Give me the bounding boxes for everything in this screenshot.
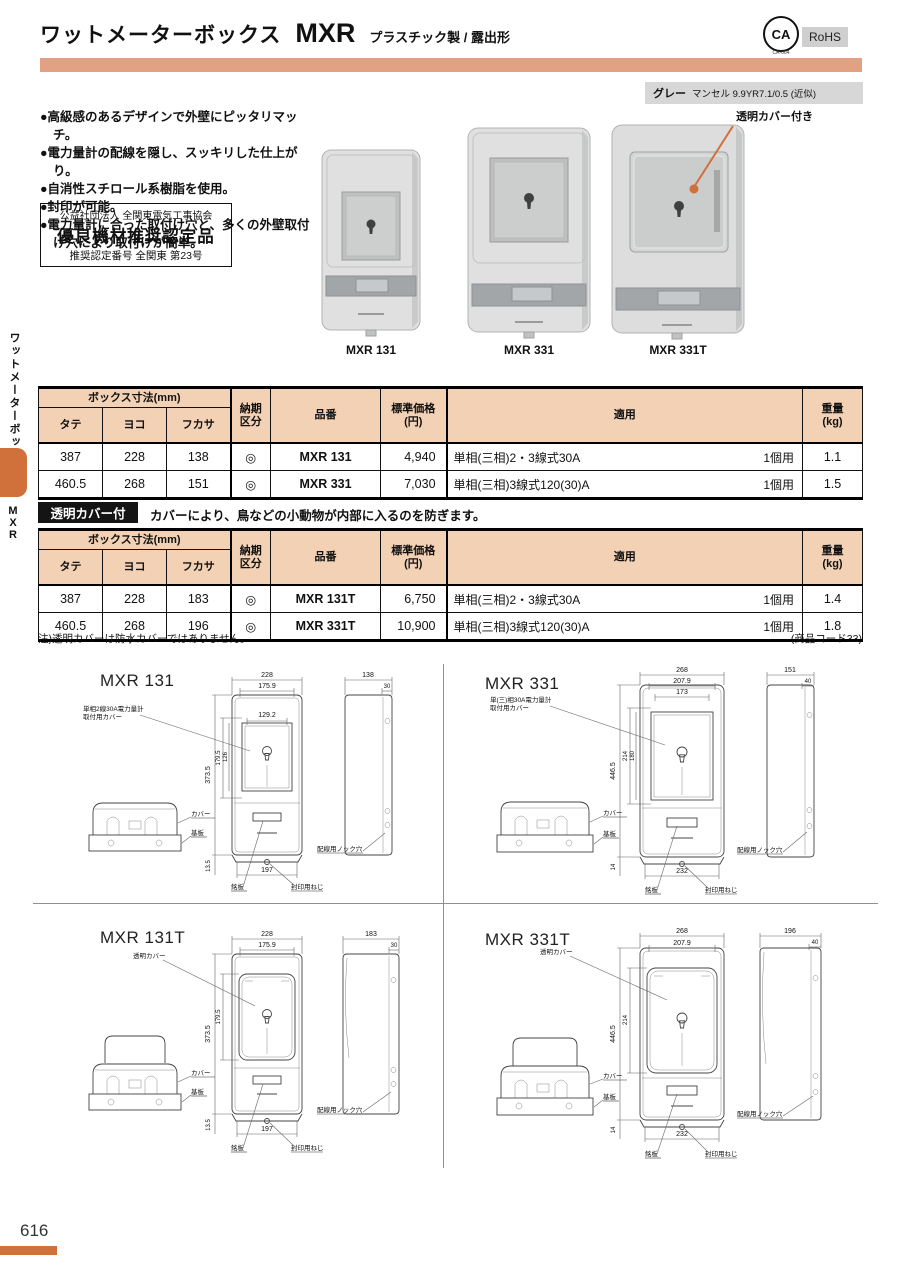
callout-nameplate: 銘板 <box>231 1143 245 1152</box>
technical-drawing-mxr131: 228 175.9 129.2 373.5 179.5 126 13.5 197… <box>45 663 440 903</box>
col-width: ヨコ <box>103 550 167 586</box>
application-text: 単相(三相)3線式120(30)A <box>454 476 590 493</box>
col-delivery: 納期 区分 <box>231 530 271 586</box>
color-name: グレー <box>653 85 686 101</box>
accent-bar <box>40 58 862 72</box>
col-price: 標準価格 (円) <box>381 530 447 586</box>
clear-cover-annotation: 透明カバー付き <box>736 108 813 124</box>
photo-mxr331t <box>612 125 744 339</box>
col-height: タテ <box>39 408 103 444</box>
feature-item: ●自消性スチロール系樹脂を使用。 <box>40 180 312 198</box>
callout-knockout: 配線用ノック穴 <box>737 845 783 854</box>
certification-box: 公益社団法人 全関東電気工事協会 優良機材推奨認定品 推奨認定番号 全関東 第2… <box>40 203 232 267</box>
dim-inner-width: 207.9 <box>673 678 691 685</box>
col-delivery-l2: 区分 <box>233 416 270 429</box>
callout-clear-cover: 透明カバー <box>133 952 166 960</box>
dim-bottom-width: 197 <box>261 1126 273 1133</box>
callout-cover: カバー <box>191 810 211 818</box>
col-weight-l1: 重量 <box>804 545 861 558</box>
application-unit: 1個用 <box>763 591 794 608</box>
col-application: 適用 <box>447 388 803 444</box>
dim-bottom-offset: 13.5 <box>206 860 212 872</box>
technical-drawing-mxr331: 268 207.9 173 446.5 214 180 14 232 151 4… <box>455 660 860 905</box>
col-price: 標準価格 (円) <box>381 388 447 444</box>
photo-label-mxr131: MXR 131 <box>326 343 416 357</box>
page-number-bar <box>0 1246 57 1255</box>
dim-width: 228 <box>261 931 273 938</box>
photo-label-mxr331: MXR 331 <box>484 343 574 357</box>
callout-seal-screw: 封印用ねじ <box>291 1143 324 1152</box>
dim-height: 373.5 <box>205 1025 212 1043</box>
footnote: 注)透明カバーは防水カバーではありません。 <box>38 631 251 646</box>
cell-yoko: 268 <box>103 471 167 499</box>
drawing-quadrant-mxr131t: MXR 131T 228 175.9 373.5 179.5 <box>45 918 440 1168</box>
callout-seal-screw: 封印用ねじ <box>705 1149 738 1158</box>
dim-height: 373.5 <box>205 766 212 784</box>
photo-mxr131 <box>322 150 420 336</box>
dim-depth2: 40 <box>805 679 812 685</box>
cell-tate: 387 <box>39 585 103 613</box>
cell-yoko: 228 <box>103 443 167 471</box>
cell-fukasa: 151 <box>167 471 231 499</box>
dim-window-h1: 214 <box>623 1014 629 1025</box>
dim-depth: 196 <box>784 928 796 935</box>
dim-bottom-width: 232 <box>676 1131 688 1138</box>
dim-width: 268 <box>676 928 688 935</box>
application-text: 単相(三相)2・3線式30A <box>454 449 581 466</box>
feature-item: ●高級感のあるデザインで外壁にピッタリマッチ。 <box>40 108 312 144</box>
callout-base: 基板 <box>603 829 617 838</box>
dim-depth: 183 <box>365 931 377 938</box>
col-part: 品番 <box>271 530 381 586</box>
callout-nameplate: 銘板 <box>231 882 245 891</box>
col-part: 品番 <box>271 388 381 444</box>
drawing-quadrant-mxr131: MXR 131 228 175.9 129.2 <box>45 663 440 903</box>
dim-bottom-offset: 13.5 <box>206 1119 212 1131</box>
callout-meter-cover-l1: 単(三)相30A電力量計 <box>490 695 552 704</box>
col-price-l1: 標準価格 <box>382 403 445 416</box>
photo-mxr331 <box>468 128 590 338</box>
dim-depth: 138 <box>362 672 374 679</box>
callout-seal-screw: 封印用ねじ <box>705 885 738 894</box>
keyhole-icon <box>263 747 272 761</box>
application-text: 単相(三相)2・3線式30A <box>454 591 581 608</box>
cert-title: 優良機材推奨認定品 <box>57 223 215 247</box>
cell-weight: 1.1 <box>803 443 863 471</box>
cell-fukasa: 138 <box>167 443 231 471</box>
col-price-l2: (円) <box>382 416 445 429</box>
drawing-quadrant-mxr331: MXR 331 268 207.9 173 446.5 <box>455 660 860 905</box>
sidebar-index-tab <box>0 448 27 497</box>
callout-clear-cover: 透明カバー <box>540 948 573 956</box>
col-box-dims: ボックス寸法(mm) <box>39 388 231 408</box>
callout-knockout: 配線用ノック穴 <box>317 844 363 853</box>
product-photos: MXR 131 MXR 331 MXR 331T 透明カバー付き <box>300 100 860 370</box>
dim-bottom-width: 197 <box>261 867 273 874</box>
clear-cover-description: カバーにより、鳥などの小動物が内部に入るのを防ぎます。 <box>150 505 486 524</box>
col-width: ヨコ <box>103 408 167 444</box>
dim-inner-width: 175.9 <box>258 942 276 949</box>
application-text: 単相(三相)3線式120(30)A <box>454 618 590 635</box>
dim-bottom-offset: 14 <box>611 1126 617 1133</box>
col-price-l2: (円) <box>382 558 445 571</box>
col-delivery-l1: 納期 <box>233 545 270 558</box>
catalog-page: ワットメーターボックス MXR プラスチック製 / 露出形 CA CA-004 … <box>0 0 900 1273</box>
cell-part-number: MXR 331T <box>271 613 381 641</box>
col-box-dims: ボックス寸法(mm) <box>39 530 231 550</box>
col-weight: 重量 (kg) <box>803 530 863 586</box>
page-header: ワットメーターボックス MXR プラスチック製 / 露出形 <box>40 18 510 49</box>
page-number: 616 <box>20 1221 48 1241</box>
page-subtitle: プラスチック製 / 露出形 <box>369 27 510 46</box>
cell-part-number: MXR 131 <box>271 443 381 471</box>
col-depth: フカサ <box>167 408 231 444</box>
callout-base: 基板 <box>191 828 205 837</box>
photo-label-mxr331t: MXR 331T <box>633 343 723 357</box>
keyhole-icon <box>263 1010 272 1024</box>
clear-cover-badge: 透明カバー付 <box>38 502 138 523</box>
table-row: 460.5 268 151 ◎ MXR 331 7,030 単相(三相)3線式1… <box>39 471 863 499</box>
rohs-badge: RoHS <box>802 27 848 47</box>
model-name: MXR <box>295 18 355 49</box>
callout-nameplate: 銘板 <box>645 1149 659 1158</box>
product-code-note: (商品コード33) <box>740 631 862 646</box>
dim-depth2: 30 <box>391 943 398 949</box>
dim-depth: 151 <box>784 667 796 674</box>
dim-window-h1: 214 <box>623 750 629 761</box>
cert-association: 公益社団法人 全関東電気工事協会 <box>60 207 213 222</box>
col-application: 適用 <box>447 530 803 586</box>
spec-table-standard: ボックス寸法(mm) 納期 区分 品番 標準価格 (円) 適用 重量 (kg) … <box>38 386 863 500</box>
dim-window-h2: 180 <box>630 750 636 761</box>
col-price-l1: 標準価格 <box>382 545 445 558</box>
technical-drawing-mxr331t: 268 207.9 446.5 214 14 232 196 40 <box>455 918 860 1173</box>
cell-price: 4,940 <box>381 443 447 471</box>
callout-cover: カバー <box>603 1072 623 1080</box>
col-depth: フカサ <box>167 550 231 586</box>
callout-cover: カバー <box>603 809 623 817</box>
cell-yoko: 228 <box>103 585 167 613</box>
dim-width: 228 <box>261 672 273 679</box>
dim-height: 446.5 <box>610 762 617 780</box>
ca-label: CA <box>772 27 791 42</box>
cell-delivery: ◎ <box>231 585 271 613</box>
dim-height: 446.5 <box>610 1025 617 1043</box>
callout-seal-screw: 封印用ねじ <box>291 882 324 891</box>
cell-weight: 1.4 <box>803 585 863 613</box>
application-unit: 1個用 <box>763 449 794 466</box>
dim-depth2: 30 <box>384 684 391 690</box>
callout-base: 基板 <box>603 1092 617 1101</box>
cell-tate: 387 <box>39 443 103 471</box>
table-row: 387 228 138 ◎ MXR 131 4,940 単相(三相)2・3線式3… <box>39 443 863 471</box>
cell-application: 単相(三相)3線式120(30)A 1個用 <box>447 471 803 499</box>
col-weight-l2: (kg) <box>804 558 861 571</box>
dim-window-width: 129.2 <box>258 712 276 719</box>
keyhole-icon <box>677 747 687 762</box>
cell-price: 7,030 <box>381 471 447 499</box>
cell-tate: 460.5 <box>39 471 103 499</box>
col-delivery-l2: 区分 <box>233 558 270 571</box>
table-row: 387 228 183 ◎ MXR 131T 6,750 単相(三相)2・3線式… <box>39 585 863 613</box>
callout-meter-cover-l2: 取付用カバー <box>490 703 529 712</box>
dim-inner-width: 175.9 <box>258 683 276 690</box>
cell-delivery: ◎ <box>231 471 271 499</box>
cell-part-number: MXR 131T <box>271 585 381 613</box>
dim-width: 268 <box>676 667 688 674</box>
dim-bottom-offset: 14 <box>611 863 617 870</box>
cell-application: 単相(三相)2・3線式30A 1個用 <box>447 585 803 613</box>
keyhole-icon <box>677 1013 687 1028</box>
dim-window-width: 173 <box>676 689 688 696</box>
dim-bottom-width: 232 <box>676 868 688 875</box>
ca-cert-icon: CA <box>763 16 799 52</box>
cell-weight: 1.5 <box>803 471 863 499</box>
cell-price: 6,750 <box>381 585 447 613</box>
dim-window-h1: 179.5 <box>216 750 222 766</box>
dim-window-h2: 126 <box>223 751 229 762</box>
page-title: ワットメーターボックス <box>40 19 281 49</box>
color-munsell-value: マンセル 9.9YR7.1/0.5 (近似) <box>692 86 816 100</box>
product-photo-illustration <box>300 100 860 350</box>
callout-meter-cover-l1: 単相2線30A電力量計 <box>83 704 144 713</box>
callout-cover: カバー <box>191 1069 211 1077</box>
callout-meter-cover-l2: 取付用カバー <box>83 712 122 721</box>
col-weight: 重量 (kg) <box>803 388 863 444</box>
cell-fukasa: 183 <box>167 585 231 613</box>
cert-number: 推奨認定番号 全関東 第23号 <box>69 248 202 263</box>
sidebar-model-label: MXR <box>7 505 19 541</box>
drawings-divider-vertical <box>443 664 444 1168</box>
cell-application: 単相(三相)2・3線式30A 1個用 <box>447 443 803 471</box>
callout-knockout: 配線用ノック穴 <box>317 1105 363 1114</box>
dim-window-h1: 179.5 <box>216 1009 222 1025</box>
cell-price: 10,900 <box>381 613 447 641</box>
col-delivery: 納期 区分 <box>231 388 271 444</box>
col-weight-l1: 重量 <box>804 403 861 416</box>
callout-base: 基板 <box>191 1087 205 1096</box>
col-delivery-l1: 納期 <box>233 403 270 416</box>
cell-delivery: ◎ <box>231 443 271 471</box>
dim-inner-width: 207.9 <box>673 940 691 947</box>
callout-nameplate: 銘板 <box>645 885 659 894</box>
application-unit: 1個用 <box>763 476 794 493</box>
cell-part-number: MXR 331 <box>271 471 381 499</box>
col-height: タテ <box>39 550 103 586</box>
col-weight-l2: (kg) <box>804 416 861 429</box>
technical-drawing-mxr131t: 228 175.9 373.5 179.5 13.5 197 183 30 <box>45 918 440 1168</box>
spec-table-clear-cover: ボックス寸法(mm) 納期 区分 品番 標準価格 (円) 適用 重量 (kg) … <box>38 528 863 642</box>
callout-knockout: 配線用ノック穴 <box>737 1109 783 1118</box>
ca-code: CA-004 <box>763 50 799 56</box>
drawing-quadrant-mxr331t: MXR 331T 268 207.9 446.5 214 <box>455 918 860 1173</box>
dim-depth2: 40 <box>812 940 819 946</box>
feature-item: ●電力量計の配線を隠し、スッキリした仕上がり。 <box>40 144 312 180</box>
